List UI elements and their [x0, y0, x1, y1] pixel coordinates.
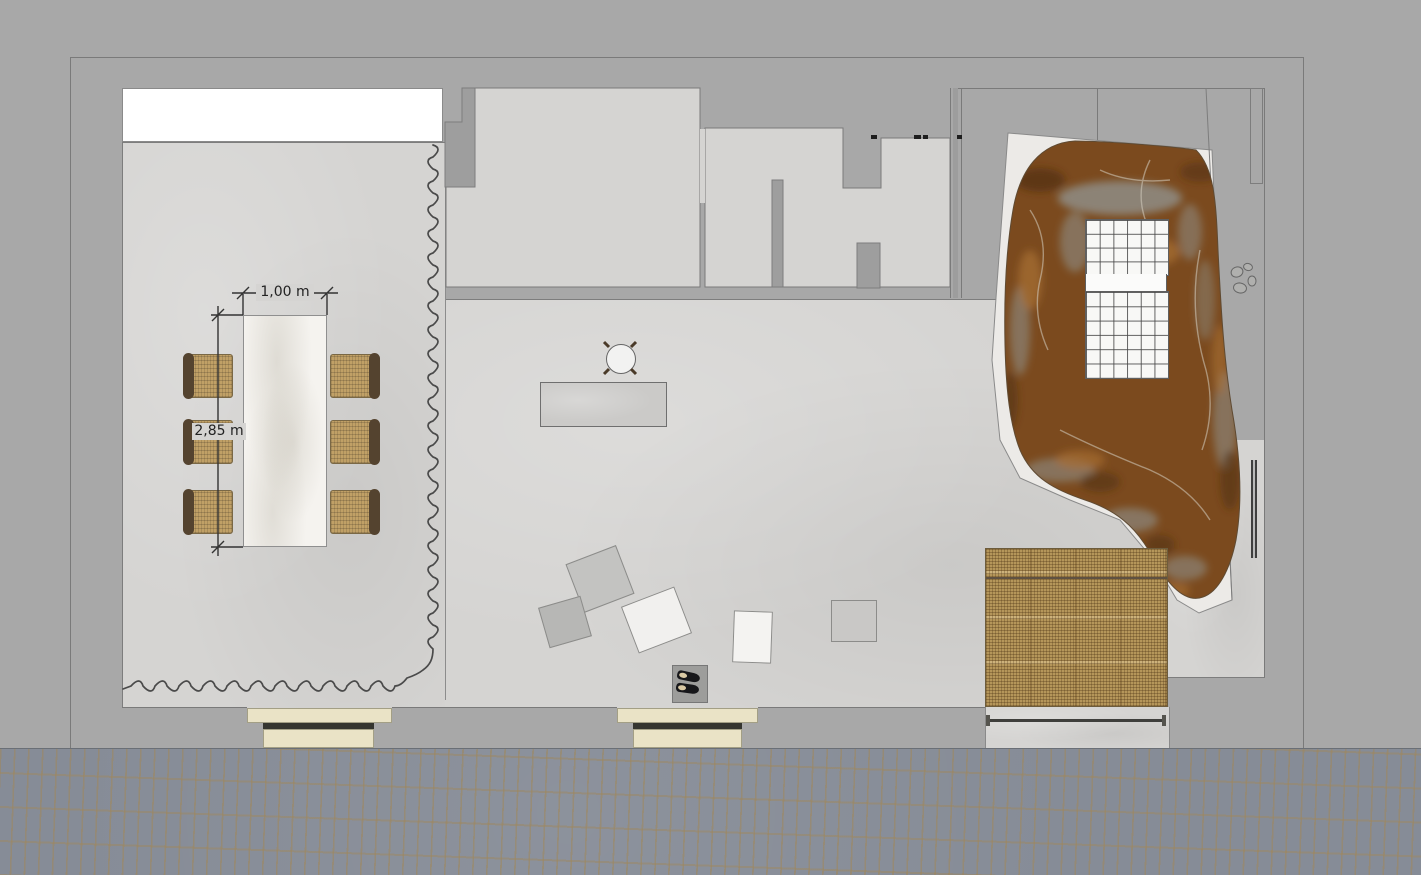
dimension-lines — [211, 287, 338, 556]
curtain — [123, 145, 438, 691]
round-stool-feet — [604, 342, 636, 374]
floor-plan-canvas: 1,00 m 2,85 m — [0, 0, 1421, 875]
table-length-dimension: 2,85 m — [192, 423, 246, 440]
table-width-dimension: 1,00 m — [256, 284, 314, 301]
